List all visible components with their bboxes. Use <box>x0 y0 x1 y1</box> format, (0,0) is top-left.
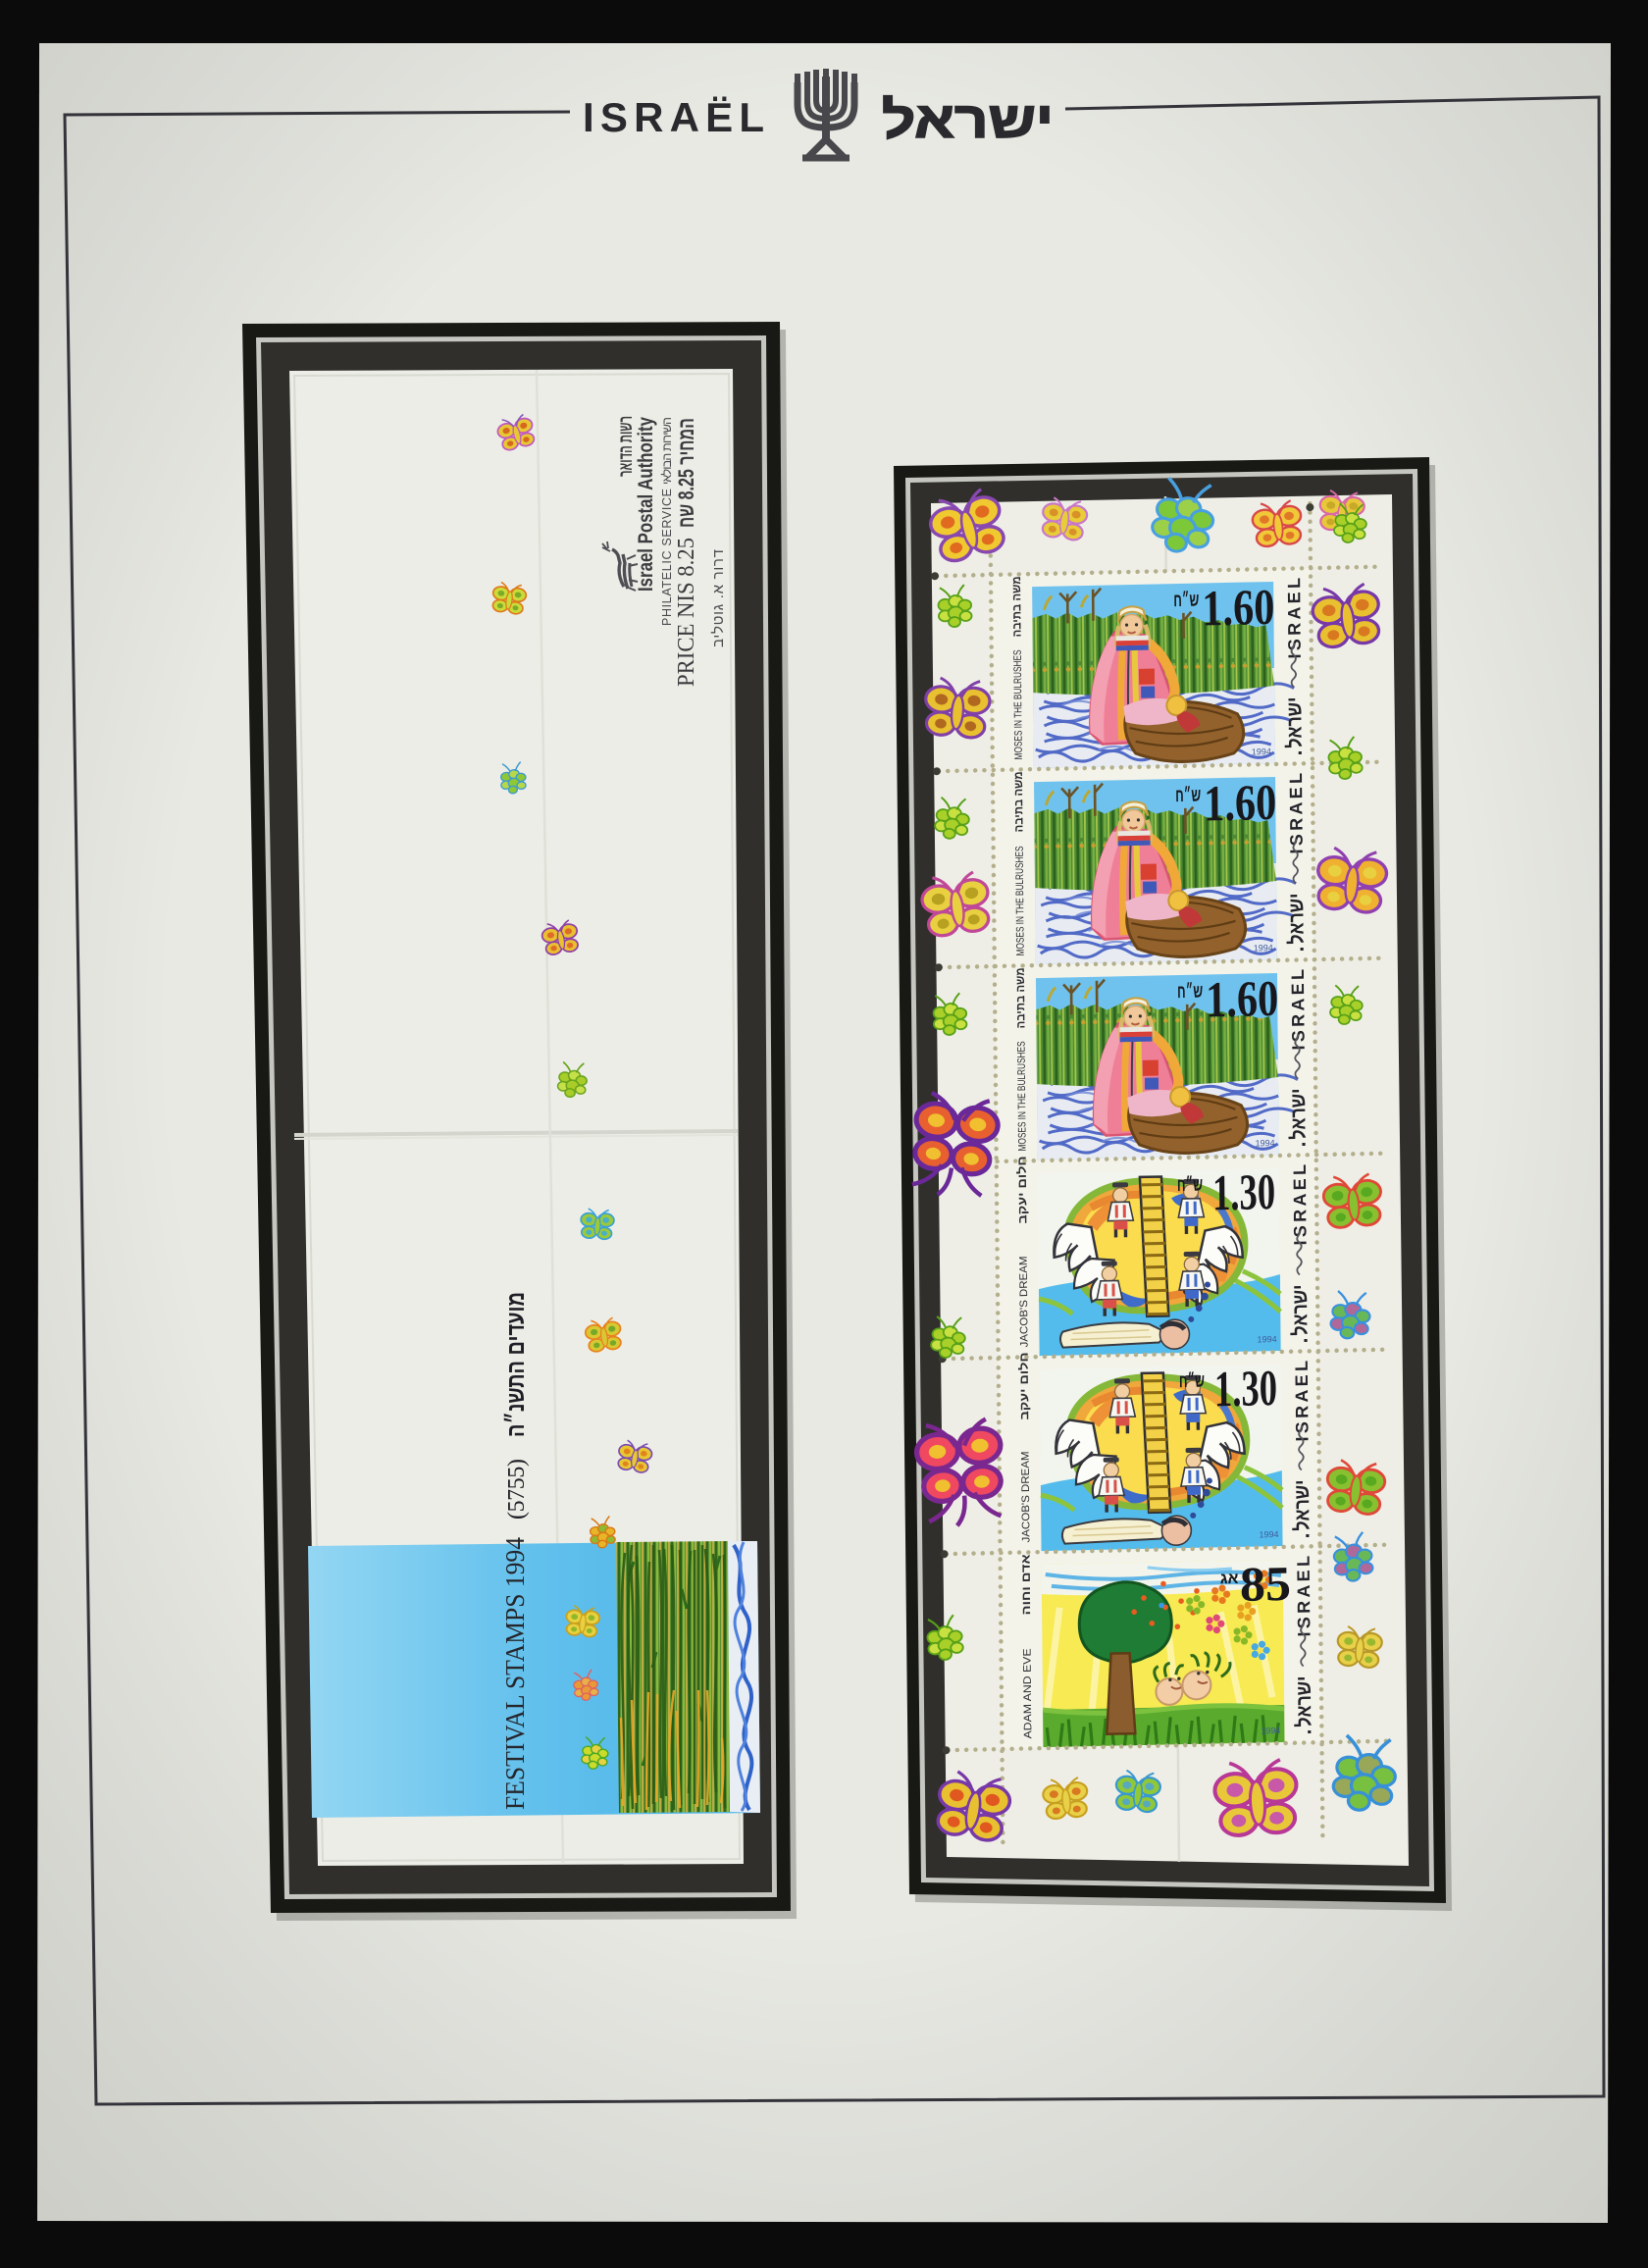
svg-text:אדם וחוה: אדם וחוה <box>1019 1554 1034 1615</box>
svg-text:1.30: 1.30 <box>1214 1361 1278 1417</box>
svg-text:1.30: 1.30 <box>1212 1164 1276 1221</box>
svg-text:אג: אג <box>1220 1571 1239 1587</box>
svg-text:FESTIVAL STAMPS 1994: FESTIVAL STAMPS 1994 <box>500 1537 530 1810</box>
svg-text:1.60: 1.60 <box>1204 775 1277 833</box>
svg-text:חלום יעקב: חלום יעקב <box>1017 1352 1032 1419</box>
svg-text:JACOB'S DREAM: JACOB'S DREAM <box>1020 1451 1033 1542</box>
svg-text:1994: 1994 <box>1257 1334 1276 1344</box>
svg-text:משה בתיבה: משה בתיבה <box>1011 771 1026 832</box>
svg-text:השירות הבולאי: השירות הבולאי <box>660 417 674 485</box>
svg-text:MOSES IN THE BULRUSHES: MOSES IN THE BULRUSHES <box>1016 1041 1029 1151</box>
svg-text:ש״ח: ש״ח <box>1173 591 1199 612</box>
svg-text:רשות הדואר: רשות הדואר <box>616 416 637 477</box>
svg-text:MOSES IN THE BULRUSHES: MOSES IN THE BULRUSHES <box>1014 846 1027 955</box>
svg-text:1994: 1994 <box>1252 747 1271 756</box>
svg-text:1994: 1994 <box>1259 1529 1278 1539</box>
svg-text:ישראל: ישראל <box>882 92 1054 149</box>
svg-text:משה בתיבה: משה בתיבה <box>1009 576 1024 637</box>
svg-text:המחיר 8.25 שח: המחיר 8.25 שח <box>674 418 698 528</box>
svg-text:1994: 1994 <box>1256 1138 1275 1148</box>
svg-text:משה בתיבה: משה בתיבה <box>1013 967 1028 1028</box>
svg-text:ישראל: ישראל <box>1283 696 1306 747</box>
svg-text:ISRAEL: ISRAEL <box>1288 965 1309 1050</box>
svg-text:ISRAËL: ISRAËL <box>583 94 772 140</box>
svg-text:ישראל: ישראל <box>1287 1088 1310 1139</box>
svg-text:JACOB'S DREAM: JACOB'S DREAM <box>1018 1256 1031 1347</box>
svg-text:1.60: 1.60 <box>1206 971 1279 1029</box>
svg-text:ש״ח: ש״ח <box>1179 1371 1205 1393</box>
svg-text:ש״ח: ש״ח <box>1175 786 1201 807</box>
svg-text:.: . <box>1288 1141 1311 1147</box>
svg-text:.: . <box>1290 1337 1313 1343</box>
svg-text:Israel Postal Authority: Israel Postal Authority <box>635 417 657 592</box>
svg-text:85: 85 <box>1240 1556 1292 1612</box>
svg-text:ISRAEL: ISRAEL <box>1284 574 1305 658</box>
svg-text:ADAM AND EVE: ADAM AND EVE <box>1022 1648 1035 1738</box>
svg-text:1994: 1994 <box>1261 1726 1280 1735</box>
svg-text:דרור א. גוטליב: דרור א. גוטליב <box>710 549 727 647</box>
svg-text:ישראל: ישראל <box>1293 1675 1315 1727</box>
svg-text:.: . <box>1284 749 1307 755</box>
svg-text:ש״ח: ש״ח <box>1177 982 1203 1004</box>
svg-text:.: . <box>1286 946 1309 952</box>
svg-text:ישראל: ישראל <box>1289 1284 1312 1335</box>
svg-text:ישראל: ישראל <box>1291 1479 1313 1530</box>
svg-text:PRICE NIS 8.25: PRICE NIS 8.25 <box>674 538 699 687</box>
svg-text:חלום יעקב: חלום יעקב <box>1015 1156 1030 1223</box>
svg-text:ישראל: ישראל <box>1285 893 1308 944</box>
svg-text:.: . <box>1293 1728 1315 1734</box>
svg-text:MOSES IN THE BULRUSHES: MOSES IN THE BULRUSHES <box>1012 649 1025 759</box>
svg-text:ש״ח: ש״ח <box>1177 1175 1203 1197</box>
svg-text:ISRAEL: ISRAEL <box>1292 1357 1313 1441</box>
svg-text:1994: 1994 <box>1254 943 1273 953</box>
svg-text:1.60: 1.60 <box>1202 580 1275 638</box>
svg-text:מועדים התשנ״ה: מועדים התשנ״ה <box>502 1292 530 1437</box>
svg-text:.: . <box>1291 1532 1313 1538</box>
svg-text:PHILATELIC SERVICE: PHILATELIC SERVICE <box>660 489 674 626</box>
svg-text:(5755): (5755) <box>504 1459 530 1520</box>
